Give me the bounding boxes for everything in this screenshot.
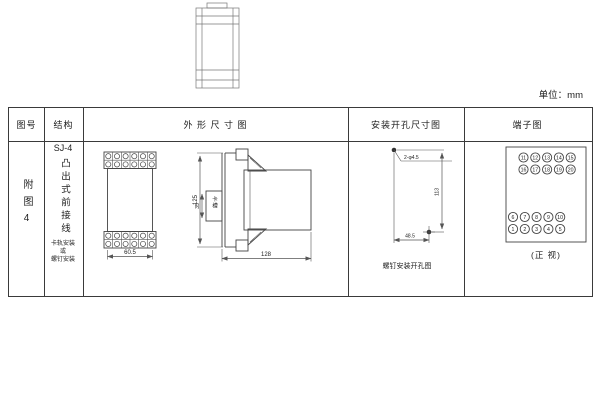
- structure-mount-note: 卡轨安装 或 螺钉安装: [43, 240, 83, 264]
- figure-number: 附图4: [19, 179, 34, 231]
- table-frame: 图号 结构 外 形 尺 寸 图 安装开孔尺寸图 端子图: [8, 107, 593, 297]
- table-border-1: [44, 108, 45, 296]
- unit-label: 单位：mm: [495, 87, 583, 101]
- header-outline: 外 形 尺 寸 图: [83, 118, 348, 131]
- structure-model: SJ-4: [44, 143, 82, 153]
- table-header-underline: [9, 141, 592, 142]
- drawing-sheet: 60.5 125 35 128: [0, 0, 600, 400]
- mounting-caption: 螺钉安装开孔图: [358, 261, 456, 271]
- relay-top-view: [196, 3, 239, 88]
- header-fig-no: 图号: [9, 118, 44, 131]
- table-border-2: [83, 108, 84, 296]
- structure-type: 凸出式前接线: [57, 158, 71, 236]
- header-structure: 结构: [44, 118, 83, 131]
- rail-slot-label: 卡槽: [210, 196, 218, 209]
- header-terminal: 端子图: [464, 118, 591, 131]
- terminal-caption: (正 视): [510, 249, 582, 261]
- table-border-3: [348, 108, 349, 296]
- header-mounting: 安装开孔尺寸图: [348, 118, 464, 131]
- table-border-4: [464, 108, 465, 296]
